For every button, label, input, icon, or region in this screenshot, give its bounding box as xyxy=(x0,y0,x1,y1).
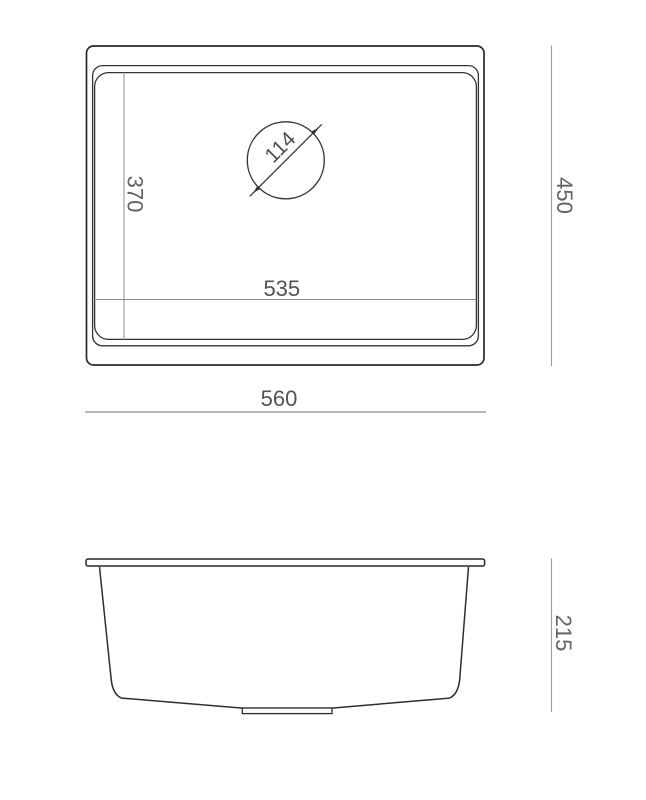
svg-text:560: 560 xyxy=(261,386,298,411)
svg-text:535: 535 xyxy=(263,276,300,301)
svg-text:370: 370 xyxy=(123,176,148,213)
svg-text:215: 215 xyxy=(551,615,576,652)
svg-text:450: 450 xyxy=(552,177,577,214)
